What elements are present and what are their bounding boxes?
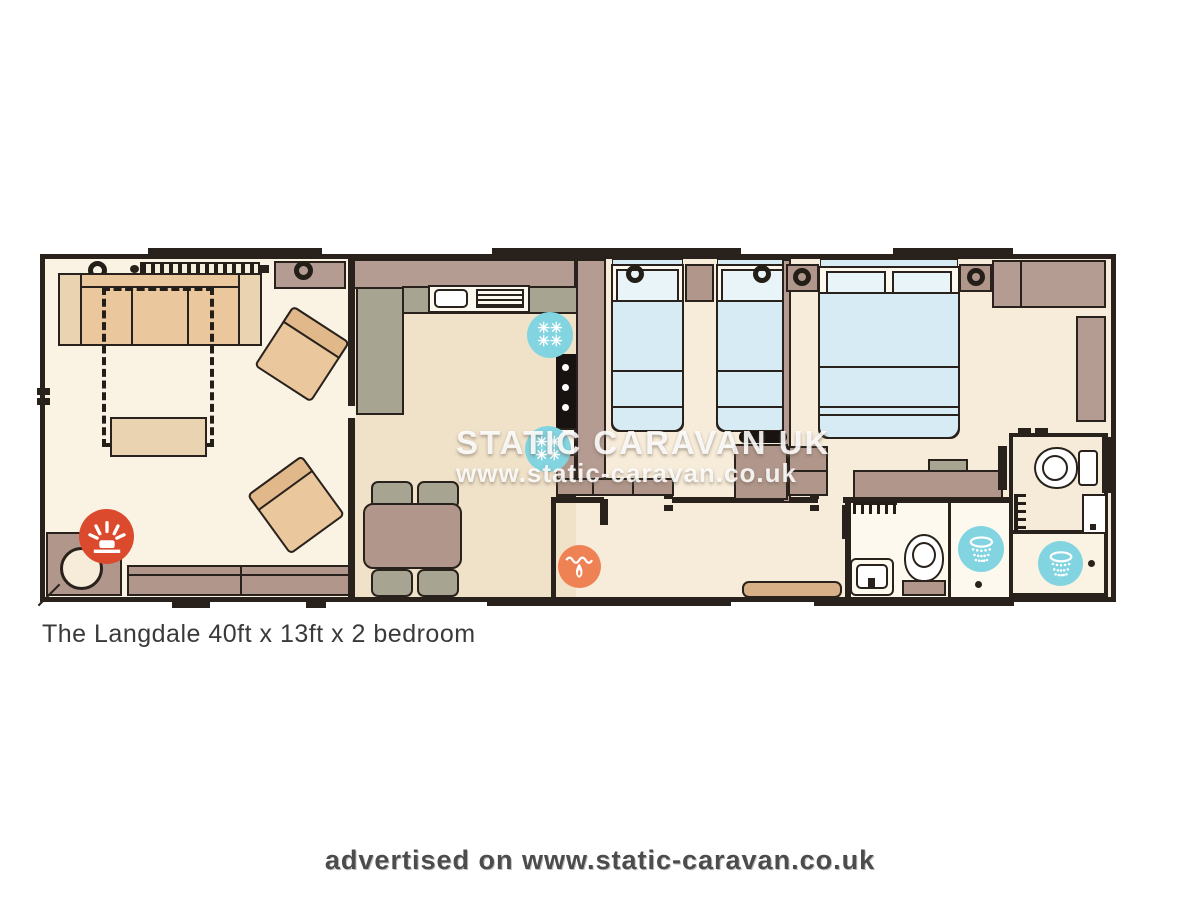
shower-drain: [975, 581, 982, 588]
sofa-arm: [238, 273, 262, 346]
stool: [928, 459, 968, 472]
dressing-table: [853, 470, 1003, 499]
wall-tick: [37, 398, 50, 405]
shower-icon: [958, 526, 1004, 572]
wall-notch: [347, 406, 356, 418]
chassis-band: [487, 598, 731, 606]
shower-icon: [1038, 541, 1083, 586]
wardrobe: [992, 260, 1106, 308]
ensuite-door-hinge: [1018, 428, 1031, 437]
wardrobe-divider: [1020, 262, 1022, 306]
cooker: [556, 354, 576, 428]
duvet-fold: [718, 370, 787, 372]
duvet-fold: [820, 366, 958, 368]
exterior-door: [1102, 437, 1116, 493]
basin-tap: [1090, 524, 1096, 530]
bedside-shelf: [685, 264, 714, 302]
reading-light: [967, 268, 985, 286]
ensuite-door-leaf: [998, 446, 1007, 490]
ensuite-door-hinge: [1035, 428, 1048, 437]
duvet-fold: [718, 406, 787, 408]
basin-tap: [868, 578, 875, 587]
ceiling-light: [294, 261, 313, 280]
toilet-cistern: [902, 580, 946, 596]
fire-feature-icon: [79, 509, 134, 564]
sink-bowl: [434, 289, 468, 308]
bed-duvet: [716, 300, 789, 432]
reading-light: [793, 268, 811, 286]
chassis-band: [814, 598, 1014, 606]
bath-door-leaf: [842, 505, 850, 539]
fridge-icon: ✳✳✳✳: [527, 312, 573, 358]
door-hinge: [810, 505, 819, 511]
wall-diner-hall: [551, 497, 556, 597]
wall-tick: [37, 388, 50, 395]
sink-drainer: [476, 289, 524, 308]
dining-chair: [417, 569, 459, 597]
duvet-fold: [613, 406, 682, 408]
dining-table: [363, 503, 462, 569]
plan-caption: The Langdale 40ft x 13ft x 2 bedroom: [42, 620, 476, 649]
window-band-cap: [130, 265, 139, 273]
footer-watermark: advertised on www.static-caravan.co.uk: [0, 845, 1200, 876]
dining-chair: [371, 569, 413, 597]
roof-band: [492, 248, 741, 256]
twin-door-leaf: [600, 499, 608, 525]
toilet-bowl: [912, 542, 936, 568]
wall-lounge-kitchen: [348, 259, 355, 597]
reading-light: [626, 265, 644, 283]
roof-band: [148, 248, 322, 256]
towel-rail: [1014, 494, 1026, 532]
window-band-cap: [260, 265, 269, 273]
tall-cabinet: [1076, 316, 1106, 422]
duvet-fold: [820, 406, 958, 408]
entrance-step: [742, 581, 842, 598]
shower-drain: [1088, 560, 1095, 567]
toilet-cistern: [1078, 450, 1098, 486]
duvet-fold: [613, 370, 682, 372]
duvet-fold: [820, 414, 958, 416]
door-hinge: [664, 505, 673, 511]
bed-duvet: [611, 300, 684, 432]
bench-divider: [240, 567, 242, 594]
reading-light: [753, 265, 771, 283]
chassis-mark: [306, 600, 326, 608]
towel-rail: [853, 501, 897, 514]
chassis-mark: [172, 600, 210, 608]
roof-band: [893, 248, 1013, 256]
coffee-table: [110, 417, 207, 457]
kitchen-counter-left: [356, 287, 404, 415]
boiler-flame-icon: [558, 545, 601, 588]
watermark-title: STATIC CARAVAN UK: [456, 424, 830, 462]
watermark-url: www.static-caravan.co.uk: [456, 458, 797, 489]
sofa-arm: [58, 273, 82, 346]
floorplan-page: ✳✳✳✳ ✳✳✳✳: [0, 0, 1200, 900]
wall-hall-bedrooms: [556, 497, 604, 503]
toilet-bowl: [1042, 455, 1068, 481]
